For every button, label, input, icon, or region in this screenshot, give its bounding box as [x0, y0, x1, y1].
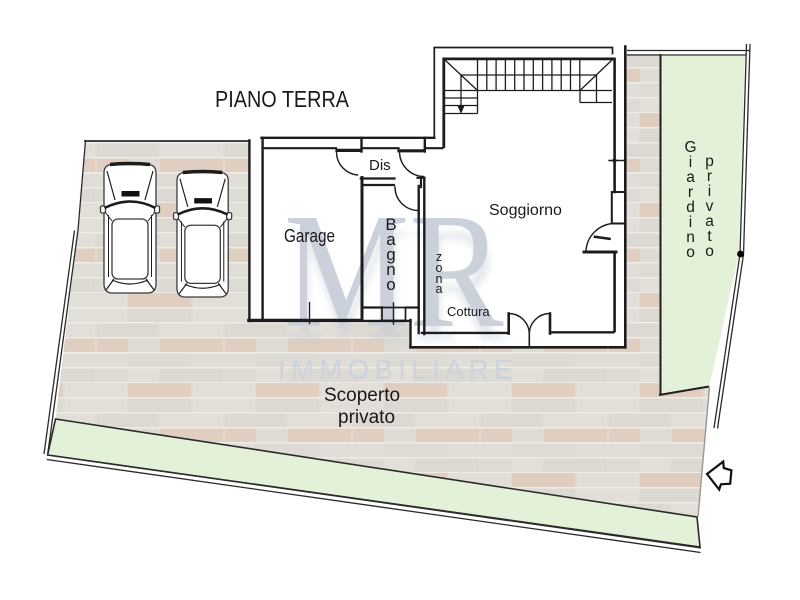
svg-text:a: a — [436, 282, 443, 296]
svg-text:Garage: Garage — [284, 226, 335, 246]
svg-text:Cottura: Cottura — [447, 304, 490, 319]
svg-text:Dis: Dis — [369, 157, 391, 174]
svg-text:o: o — [386, 275, 395, 294]
svg-text:privato: privato — [338, 407, 395, 428]
svg-text:IMMOBILIARE: IMMOBILIARE — [278, 354, 518, 385]
svg-text:o: o — [686, 244, 695, 261]
svg-text:Soggiorno: Soggiorno — [489, 202, 562, 219]
svg-text:o: o — [705, 243, 714, 260]
svg-text:Scoperto: Scoperto — [324, 385, 400, 406]
svg-text:PIANO TERRA: PIANO TERRA — [215, 86, 350, 112]
